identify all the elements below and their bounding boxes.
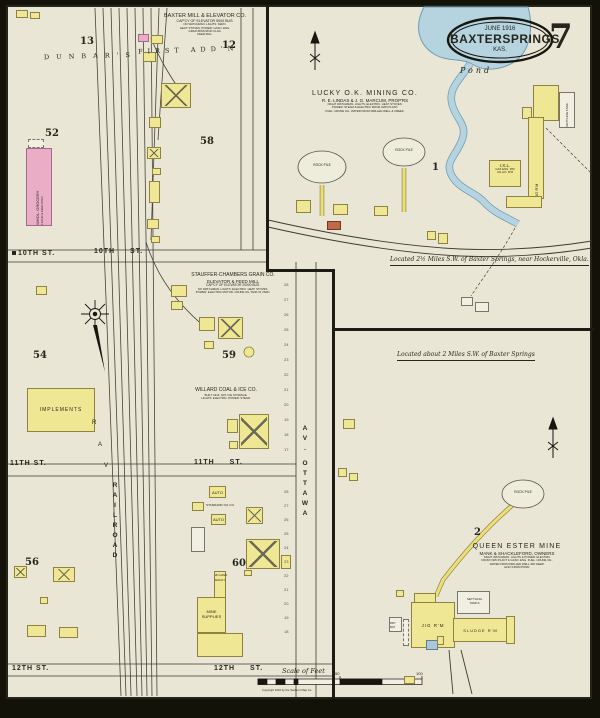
lot-number: 19 (284, 615, 288, 620)
building (338, 468, 347, 477)
inset-border-left (266, 5, 269, 272)
ixl-line2: OIL HO. R'M (489, 171, 521, 174)
state-name: KAS. (450, 47, 550, 54)
building (28, 139, 44, 148)
building (404, 676, 415, 684)
building (27, 625, 46, 637)
pond-label: Pond (460, 66, 492, 75)
sludge-room-label: SLUDGE R'M (463, 628, 498, 633)
lot-number: 25 (284, 327, 288, 332)
building (327, 221, 341, 230)
sheet-number: 7 (549, 18, 573, 57)
auto-garage-building: AUTO (211, 514, 226, 525)
building (427, 231, 436, 240)
auto-label: AUTO (213, 517, 224, 522)
lot-number: 24 (284, 342, 288, 347)
baxter-mill-note: FEED MILL. (155, 33, 255, 36)
lucky-company-name: LUCKY O.K. MINING CO. (295, 90, 435, 98)
building (349, 473, 358, 481)
lot-number: 18 (284, 629, 288, 634)
auto-label: AUTO (212, 490, 223, 495)
block-number-54: 54 (33, 350, 47, 362)
street-label-11th-west: 11TH ST. (10, 460, 47, 468)
building (151, 236, 160, 243)
inset-border-divider (332, 328, 594, 331)
queen-mine-name: QUEEN ESTER MINE (462, 543, 572, 551)
mine-supplies-note2: MACH'Y (215, 579, 226, 582)
street-label-10th-west: 10TH ST. (12, 250, 55, 258)
lot-number: 17 (284, 447, 288, 452)
inset-border-step (266, 269, 335, 272)
copyright-line: Copyright 1916 by the Sanborn Map Co. (262, 689, 312, 692)
lot-number: 27 (284, 503, 288, 508)
city-name: BAXTERSPRINGS (450, 33, 550, 47)
building (437, 636, 444, 645)
lot-number: 20 (284, 601, 288, 606)
building (40, 597, 48, 604)
grocery-label: WHOL. GROCERY (35, 149, 40, 225)
street-label-11th: 11TH ST. (194, 459, 243, 467)
rock-pile-label: ROCK PILE (503, 491, 543, 495)
lot-number: 25 (284, 531, 288, 536)
building (374, 206, 388, 216)
scale-label: Scale of Feet (282, 668, 325, 675)
auto-garage-building: AUTO (209, 486, 226, 498)
lot-number: 26 (284, 312, 288, 317)
section-number-2: 2 (474, 527, 481, 539)
building (204, 341, 214, 349)
lot-number: 18 (284, 432, 288, 437)
grain-elevator-building (218, 317, 243, 339)
block-number-52: 52 (45, 128, 59, 140)
rock-pile-label: ROCK PILE (300, 164, 344, 168)
block-number-56: 56 (25, 557, 39, 569)
building (227, 419, 238, 433)
street-label-railroad: RAILROAD (111, 482, 118, 562)
lucky-note: FUEL: CRUDE OIL. WATER FROM DRILLED WELL… (295, 110, 435, 113)
building (296, 200, 311, 213)
sanborn-map-sheet: WHOL. GROCERY FLOUR & FEED W'HO. IMPLEME… (0, 0, 600, 718)
building (138, 34, 149, 42)
building (244, 570, 252, 576)
building (396, 590, 404, 597)
building (151, 35, 163, 44)
sludge-room-building: SLUDGE R'M (453, 618, 508, 642)
grocery-sublabel: FLOUR & FEED W'HO. (40, 149, 44, 225)
lot-number: 24 (284, 545, 288, 550)
implements-label: IMPLEMENTS (40, 407, 83, 413)
building (506, 616, 515, 644)
lucky-location-note: Located 2½ Miles S.W. of Baxter Springs,… (390, 257, 589, 266)
building (36, 286, 47, 295)
standard-oil-label: STANDARD OIL CO. (206, 504, 235, 508)
lot-number: 22 (284, 573, 288, 578)
lot-number: 21 (284, 587, 288, 592)
street-label-10th: 10TH ST. (94, 248, 143, 256)
block-number-59: 59 (222, 350, 236, 362)
title-oval-text: JUNE 1916 BAXTERSPRINGS KAS. (450, 26, 550, 54)
street-label-12th-west: 12TH ST. (12, 665, 49, 673)
jig-room-label: JIG R'M (421, 623, 444, 628)
building (149, 117, 161, 128)
dry-room-building: DRY R'M (389, 617, 402, 632)
lot-number: 23 (284, 559, 288, 564)
building (533, 85, 559, 121)
building (229, 441, 238, 449)
warehouse-building (246, 539, 280, 569)
street-marker-icon (12, 251, 16, 255)
settling-tank-label: SETTLING TANK (565, 93, 569, 127)
pump-house-building (461, 297, 473, 306)
lot-number: 28 (284, 489, 288, 494)
block-number-12: 12 (222, 40, 236, 52)
lot-number: 20 (284, 402, 288, 407)
baxter-mill-building (161, 83, 191, 108)
baxter-mill-text-block: BAXTER MILL & ELEVATOR CO. CAP'CY OF ELE… (155, 13, 255, 36)
lot-number: 26 (284, 517, 288, 522)
stauffer-note: POWER: ELECTRIC MOTOR. CRUDE OIL TANK IN… (183, 291, 283, 294)
building (30, 12, 40, 19)
building (343, 419, 355, 429)
building (147, 219, 159, 229)
street-label-ottawa: OTTAWA (301, 460, 308, 520)
building (506, 196, 542, 208)
lot-number: 22 (284, 372, 288, 377)
scale-tick: 50 (335, 672, 339, 677)
building (191, 527, 205, 552)
queen-note: ALSO FROM POND. (462, 566, 572, 569)
building (333, 204, 348, 215)
building (438, 233, 448, 244)
building (403, 619, 409, 646)
queen-text-block: QUEEN ESTER MINE MANK & SHACKLEFORD, OWN… (462, 543, 572, 569)
section-number-1: 1 (432, 162, 439, 174)
rr-letter: A (98, 442, 102, 449)
willard-note: LIGHTS: ELECTRIC. POWER: STEAM. (180, 397, 272, 400)
pump-house-building (475, 302, 489, 312)
building (171, 301, 183, 310)
lot-number: 21 (284, 387, 288, 392)
settling-tanks-building: SETTLING TANKS (457, 591, 490, 614)
building (59, 627, 78, 638)
standard-oil-building (192, 502, 204, 511)
building (246, 507, 263, 524)
grocery-warehouse-building: WHOL. GROCERY FLOUR & FEED W'HO. (26, 148, 52, 226)
building (149, 181, 160, 203)
lot-number: 28 (284, 282, 288, 287)
rr-letter: V (104, 463, 108, 470)
building (152, 168, 161, 175)
stauffer-name: STAUFFER-CHAMBERS GRAIN CO. (183, 273, 283, 279)
block-number-58: 58 (200, 136, 214, 148)
lot-number: 23 (284, 357, 288, 362)
building (197, 633, 243, 657)
lot-number: 19 (284, 417, 288, 422)
jig-mill-building: JIG R'M (528, 117, 544, 199)
stauffer-text-block: STAUFFER-CHAMBERS GRAIN CO. ELEVATOR & F… (183, 273, 283, 294)
block-number-60: 60 (232, 558, 246, 570)
scale-tick: 100 (416, 672, 423, 677)
building (147, 147, 161, 159)
rr-letter: R (92, 420, 96, 427)
willard-text-block: WILLARD COAL & ICE CO. BUILT 1916. NAT. … (180, 388, 272, 400)
settling-tank-building: SETTLING TANK (559, 92, 575, 128)
mine-supplies-note1: 2D HAND (215, 574, 227, 577)
street-label-av: AV. (301, 425, 308, 455)
inset-border-vertical (332, 269, 335, 699)
jig-room-label: JIG R'M (534, 118, 539, 198)
rock-pile-label: ROCK PILE (384, 149, 424, 153)
street-label-12th: 12TH ST. (214, 665, 263, 673)
building (199, 317, 215, 331)
lucky-text-block: LUCKY O.K. MINING CO. R. E. LINDAS & J. … (295, 90, 435, 113)
queen-location-note: Located about 2 Miles S.W. of Baxter Spr… (397, 352, 535, 361)
block-number-13: 13 (80, 36, 94, 48)
settling-tanks-label-2: TANKS (469, 601, 479, 605)
building (16, 10, 28, 18)
implements-building: IMPLEMENTS (27, 388, 95, 432)
ice-house-building (239, 414, 269, 449)
lot-number: 27 (284, 297, 288, 302)
ixl-text: I.X.L. GAS ENG. R'M OIL HO. R'M (489, 163, 521, 175)
mine-supplies-label: MINE SUPPLIES (197, 610, 226, 619)
building (53, 567, 75, 582)
dry-room-label: DRY R'M (390, 621, 401, 629)
